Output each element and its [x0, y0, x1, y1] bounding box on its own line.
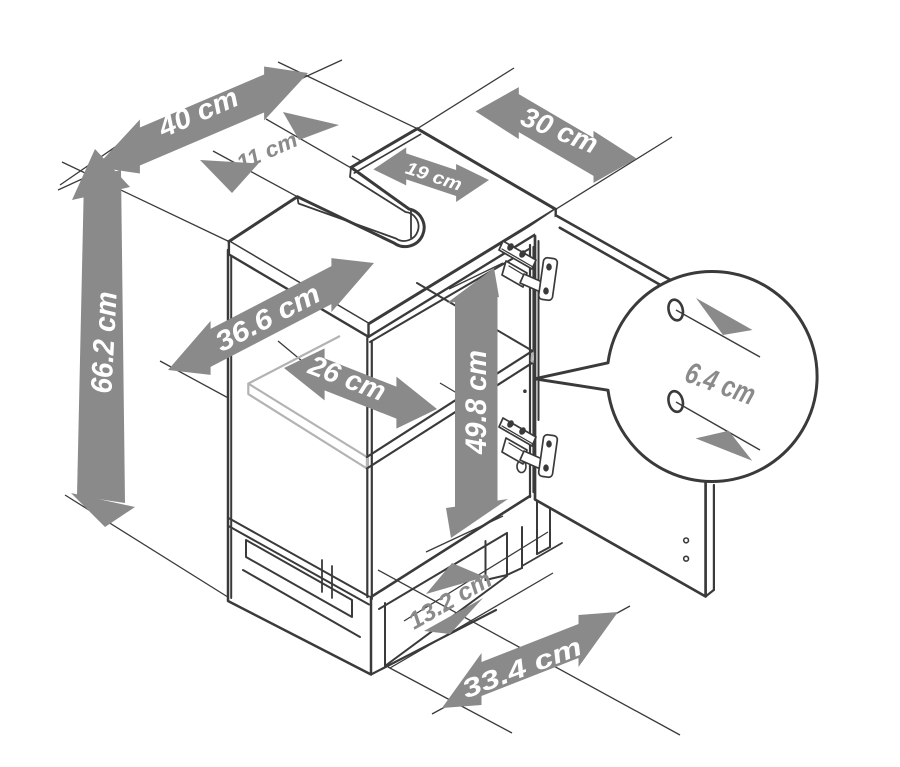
svg-text:49.8 cm: 49.8 cm — [460, 350, 493, 455]
svg-text:66.2 cm: 66.2 cm — [85, 291, 123, 395]
svg-text:11 cm: 11 cm — [233, 127, 302, 176]
